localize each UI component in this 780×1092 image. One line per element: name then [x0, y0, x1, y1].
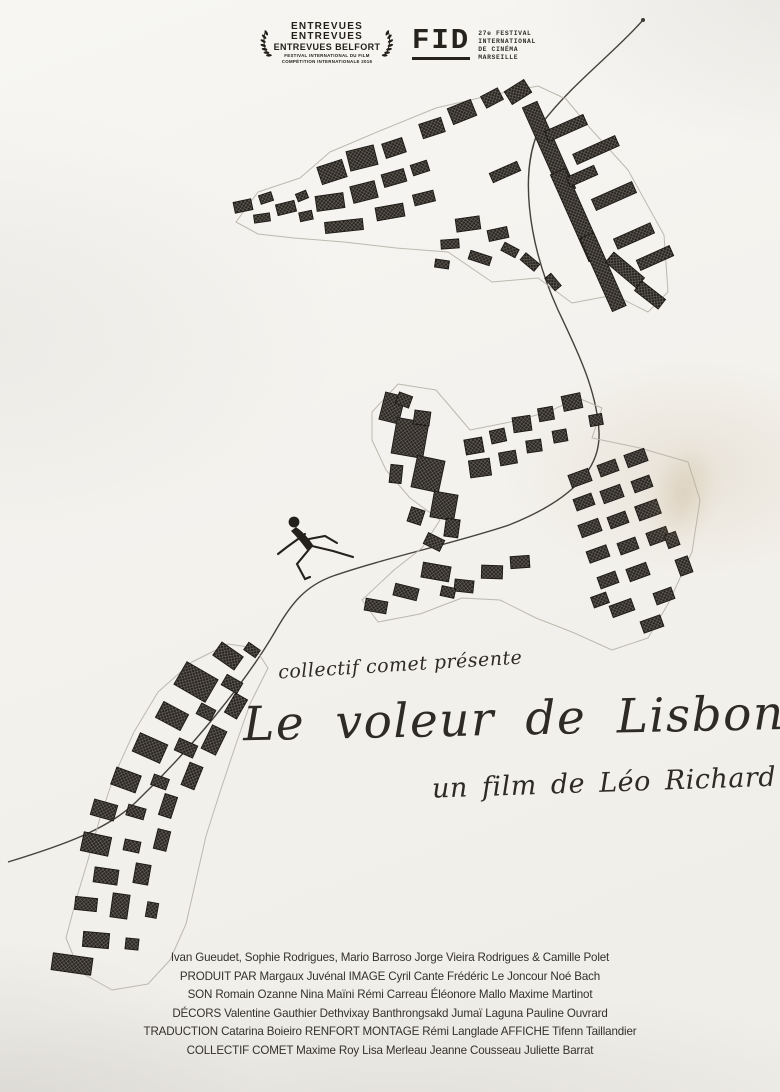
building-block [393, 583, 419, 600]
building-block [275, 200, 296, 215]
building-block [441, 239, 460, 249]
building-block [221, 674, 243, 693]
building-block [364, 598, 388, 614]
building-block [499, 450, 518, 466]
building-block [258, 192, 273, 205]
building-block [145, 902, 158, 919]
entrevues-subline-2: COMPÉTITION INTERNATIONALE 2016 [282, 60, 372, 64]
building-block [600, 484, 624, 503]
building-block [609, 598, 635, 617]
building-block [626, 562, 650, 581]
building-block [411, 455, 445, 492]
building-block [325, 219, 364, 234]
credit-line: SON Romain Ozanne Nina Maïni Rémi Carrea… [0, 986, 780, 1005]
building-block [317, 159, 347, 184]
building-block [82, 931, 109, 948]
building-block [440, 586, 456, 599]
building-block [201, 725, 227, 755]
fid-badge-text: 27e FESTIVAL INTERNATIONAL DE CINÉMA MAR… [478, 27, 536, 62]
credit-line: Ivan Gueudet, Sophie Rodrigues, Mario Ba… [0, 949, 780, 968]
building-block [552, 429, 568, 443]
town-map-top [233, 80, 674, 312]
building-block [454, 579, 474, 593]
building-block [315, 193, 345, 212]
building-block [181, 762, 203, 789]
building-block [566, 165, 597, 186]
entrevues-subline-1: FESTIVAL INTERNATIONAL DU FILM [284, 54, 370, 58]
building-block [254, 213, 271, 223]
building-block [504, 80, 531, 105]
building-block [526, 439, 543, 453]
credits-block: Ivan Gueudet, Sophie Rodrigues, Mario Ba… [0, 949, 780, 1061]
building-block [640, 615, 664, 633]
building-block [545, 114, 588, 141]
building-block [624, 448, 648, 467]
entrevues-line-3: ENTREVUES BELFORT [274, 43, 381, 52]
building-block [126, 804, 146, 820]
building-block [617, 537, 639, 555]
building-block [350, 181, 378, 204]
building-block [110, 893, 130, 919]
fid-marseille-badge: FID 27e FESTIVAL INTERNATIONAL DE CINÉMA… [412, 27, 536, 62]
film-title: Le voleur de Lisbonne [242, 685, 780, 753]
building-block [410, 160, 430, 176]
building-block [455, 216, 481, 232]
building-block [174, 662, 218, 703]
building-block [597, 459, 619, 477]
building-block [430, 491, 458, 521]
building-block [634, 281, 665, 309]
credit-line: COLLECTIF COMET Maxime Roy Lisa Merleau … [0, 1042, 780, 1061]
town-outlines [66, 86, 700, 990]
laurel-branch-right-icon [382, 14, 394, 72]
fid-line-4: MARSEILLE [478, 54, 536, 62]
building-block [213, 642, 243, 670]
running-man-drawing [278, 517, 353, 579]
building-block [468, 250, 492, 265]
building-block [464, 437, 484, 455]
building-block [537, 406, 554, 421]
fid-line-3: DE CINÉMA [478, 46, 536, 54]
entrevues-badge-text: ENTREVUES ENTREVUES ENTREVUES BELFORT FE… [274, 22, 381, 64]
credit-line: PRODUIT PAR Margaux Juvénal IMAGE Cyril … [0, 968, 780, 987]
building-block [382, 138, 407, 159]
building-block [653, 587, 675, 605]
building-block [155, 701, 188, 730]
credit-line: DÉCORS Valentine Gauthier Dethvixay Bant… [0, 1005, 780, 1024]
building-block [435, 259, 450, 269]
fid-line-1: 27e FESTIVAL [478, 30, 536, 38]
laurel-branch-left-icon [260, 14, 272, 72]
building-block [389, 464, 403, 483]
building-block [74, 896, 97, 911]
building-block [573, 136, 619, 165]
building-block [597, 571, 619, 589]
building-block [510, 555, 530, 568]
building-block [545, 273, 561, 290]
building-block [93, 867, 119, 885]
building-block [481, 88, 504, 108]
building-block [133, 863, 151, 885]
building-block [419, 117, 446, 138]
building-block [501, 242, 519, 257]
fid-line-2: INTERNATIONAL [478, 38, 536, 46]
building-block [568, 468, 592, 487]
building-block [412, 190, 435, 206]
building-block [244, 642, 261, 657]
building-block [123, 839, 141, 853]
building-block [413, 410, 431, 426]
building-block [111, 767, 142, 793]
building-block [573, 493, 595, 511]
credit-line: TRADUCTION Catarina Boieiro RENFORT MONT… [0, 1023, 780, 1042]
entrevues-line-2: ENTREVUES [291, 32, 363, 42]
building-block [375, 203, 405, 221]
building-block [299, 210, 314, 222]
building-block [421, 562, 451, 582]
building-block [132, 733, 168, 763]
film-poster: ENTREVUES ENTREVUES ENTREVUES BELFORT FE… [0, 0, 780, 1092]
building-block [481, 565, 502, 579]
building-block [591, 592, 610, 608]
building-block [675, 556, 693, 576]
building-block [589, 413, 604, 426]
town-map-bottom [51, 642, 260, 975]
building-block [447, 99, 477, 124]
building-block [233, 199, 253, 214]
building-block [520, 253, 540, 271]
building-block [346, 145, 378, 171]
building-block [489, 161, 520, 182]
building-block [489, 428, 506, 444]
building-block [636, 246, 673, 271]
fid-logo: FID [412, 27, 470, 60]
building-block [407, 507, 425, 526]
building-block [158, 794, 177, 819]
building-block [153, 829, 170, 852]
building-block [151, 774, 170, 790]
building-block [613, 223, 654, 249]
building-block [578, 518, 602, 537]
building-block [607, 511, 629, 529]
building-block [468, 458, 491, 478]
building-block [444, 518, 460, 538]
building-block [90, 799, 117, 821]
building-block [586, 545, 610, 563]
building-block [381, 169, 407, 188]
building-block [591, 182, 636, 211]
building-block [80, 832, 111, 856]
building-block [487, 227, 509, 242]
entrevues-belfort-laurel-badge: ENTREVUES ENTREVUES ENTREVUES BELFORT FE… [260, 12, 394, 74]
building-block [561, 393, 583, 412]
building-block [512, 415, 532, 432]
building-block [295, 190, 308, 202]
